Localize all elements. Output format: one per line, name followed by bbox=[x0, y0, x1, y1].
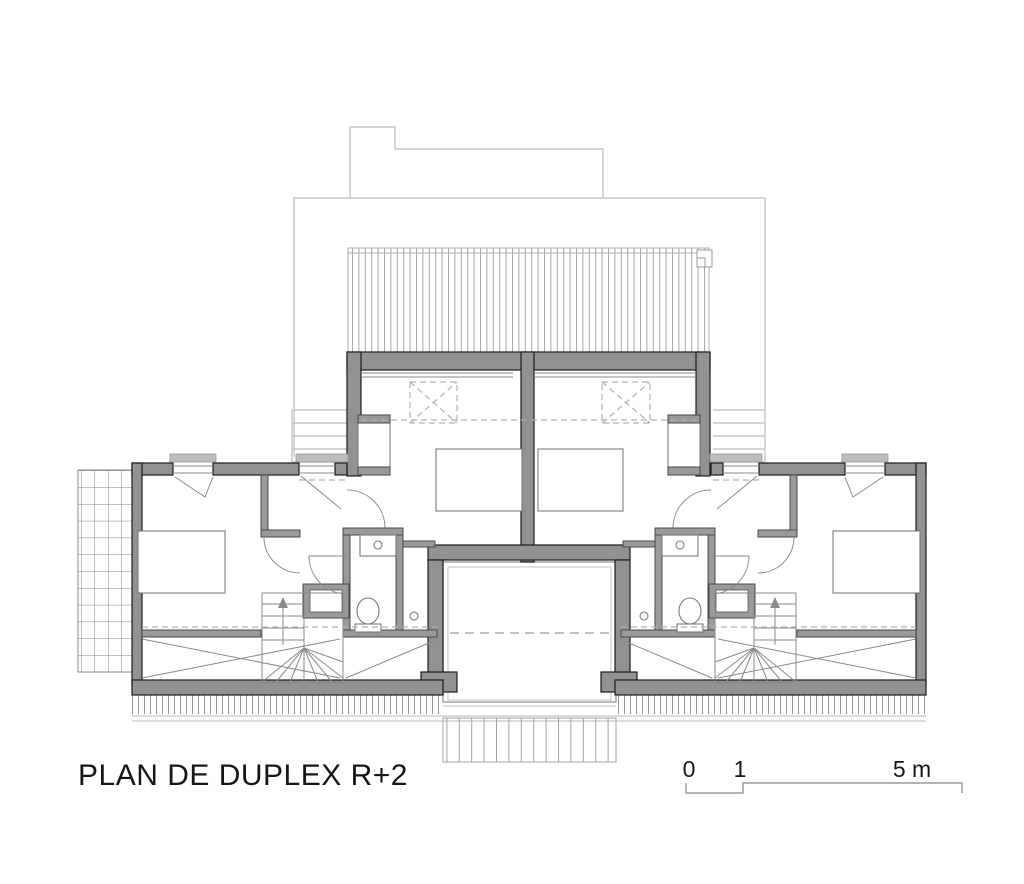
left-partition-band bbox=[261, 530, 300, 537]
left-bath-east-wall bbox=[396, 535, 403, 637]
right-partition-vertical bbox=[790, 475, 797, 530]
left-room-highwindow-lines bbox=[361, 373, 513, 377]
bed-right-wing bbox=[833, 531, 920, 593]
shower-drain-left-icon bbox=[410, 612, 418, 620]
left-door-glazing bbox=[299, 466, 335, 473]
sill-right-door bbox=[710, 454, 762, 462]
right-partition-band bbox=[758, 530, 797, 537]
right-room-highwindow-lines bbox=[534, 373, 696, 377]
bed-center-left bbox=[436, 449, 522, 511]
void-outer-frame bbox=[443, 562, 616, 702]
scale-tick-5m: 5 m bbox=[893, 756, 931, 782]
left-bath-north-wall bbox=[343, 528, 403, 535]
scale-tick-0: 0 bbox=[683, 756, 696, 782]
door-arc-center-left bbox=[347, 490, 385, 528]
wardrobe-cap-bottom-right bbox=[668, 467, 700, 475]
roof-deck bbox=[348, 248, 712, 352]
central-bedroom-left bbox=[347, 373, 522, 528]
left-wing bbox=[138, 475, 437, 682]
central-bedroom-right bbox=[534, 373, 711, 528]
right-bath-north-wall bbox=[655, 528, 715, 535]
scale-tick-1: 1 bbox=[734, 756, 747, 782]
central-void bbox=[443, 562, 616, 702]
left-shower-wall bbox=[403, 541, 435, 547]
right-wing-north-wall-c bbox=[711, 463, 723, 475]
right-knee-wall-a bbox=[797, 630, 916, 637]
left-wing-north-wall-c bbox=[335, 463, 347, 475]
stair-right-arrow-head bbox=[770, 597, 780, 608]
party-wall bbox=[521, 352, 534, 562]
left-bedroom-door-arc bbox=[264, 537, 300, 573]
sill-left-door bbox=[296, 454, 348, 462]
left-window-glazing bbox=[173, 466, 213, 473]
right-window-swing bbox=[845, 477, 883, 497]
right-bedroom-door-arc bbox=[758, 537, 794, 573]
right-window-glazing bbox=[845, 466, 885, 473]
left-window-swing bbox=[175, 477, 213, 497]
stair-left-arrow-head bbox=[278, 597, 288, 608]
wardrobe-cap-bottom-left bbox=[358, 467, 390, 475]
balcony-projection bbox=[443, 718, 616, 762]
bed-center-right bbox=[538, 449, 623, 511]
right-bath-west-wall bbox=[655, 535, 662, 637]
lower-floor-step-outline bbox=[350, 127, 603, 198]
wardrobe-cap-top-left bbox=[358, 415, 390, 423]
page-title: PLAN DE DUPLEX R+2 bbox=[78, 759, 408, 792]
wardrobe-center-left bbox=[358, 415, 390, 475]
right-terrace-door-swing bbox=[717, 476, 757, 509]
skylight-left-icon bbox=[410, 382, 457, 423]
wardrobe-cap-top-right bbox=[668, 415, 700, 423]
sill-right-window bbox=[842, 454, 888, 462]
trellis-grid bbox=[78, 470, 132, 672]
scale-bar: 0 1 5 m bbox=[683, 756, 962, 793]
skylight-right-icon bbox=[602, 382, 650, 423]
shower-drain-right-icon bbox=[640, 612, 648, 620]
right-wing-north-wall-b bbox=[759, 463, 845, 475]
eave-hatch-right bbox=[615, 695, 926, 714]
left-wing-north-wall-b bbox=[213, 463, 299, 475]
deck-boards-hatch bbox=[348, 248, 709, 352]
right-door-glazing bbox=[723, 466, 759, 473]
door-arc-center-right bbox=[673, 490, 711, 528]
left-knee-wall-a bbox=[142, 630, 261, 637]
bed-left-wing bbox=[138, 531, 225, 593]
left-sloped-ceiling-lines bbox=[142, 639, 436, 678]
wardrobe-center-right bbox=[668, 415, 700, 475]
floor-plan-drawing: PLAN DE DUPLEX R+2 0 1 5 m bbox=[0, 0, 1024, 884]
exterior-walls bbox=[132, 352, 926, 695]
void-east-wall bbox=[615, 560, 630, 674]
eave-hatch-left bbox=[132, 695, 443, 714]
void-west-wall bbox=[428, 560, 443, 674]
right-sloped-ceiling-lines bbox=[622, 639, 916, 678]
sink-right-icon bbox=[662, 535, 698, 556]
south-eave bbox=[132, 695, 926, 762]
toilet-right-icon bbox=[677, 598, 703, 632]
right-shower-wall bbox=[623, 541, 655, 547]
left-terrace-door-swing bbox=[301, 476, 341, 509]
left-partition-vertical bbox=[261, 475, 268, 530]
floor-plan-page: PLAN DE DUPLEX R+2 0 1 5 m bbox=[0, 0, 1024, 884]
right-wing bbox=[621, 475, 920, 682]
sink-left-icon bbox=[360, 535, 396, 556]
void-north-wall bbox=[428, 545, 630, 560]
sill-left-window bbox=[170, 454, 216, 462]
scale-bar-line bbox=[686, 783, 962, 793]
